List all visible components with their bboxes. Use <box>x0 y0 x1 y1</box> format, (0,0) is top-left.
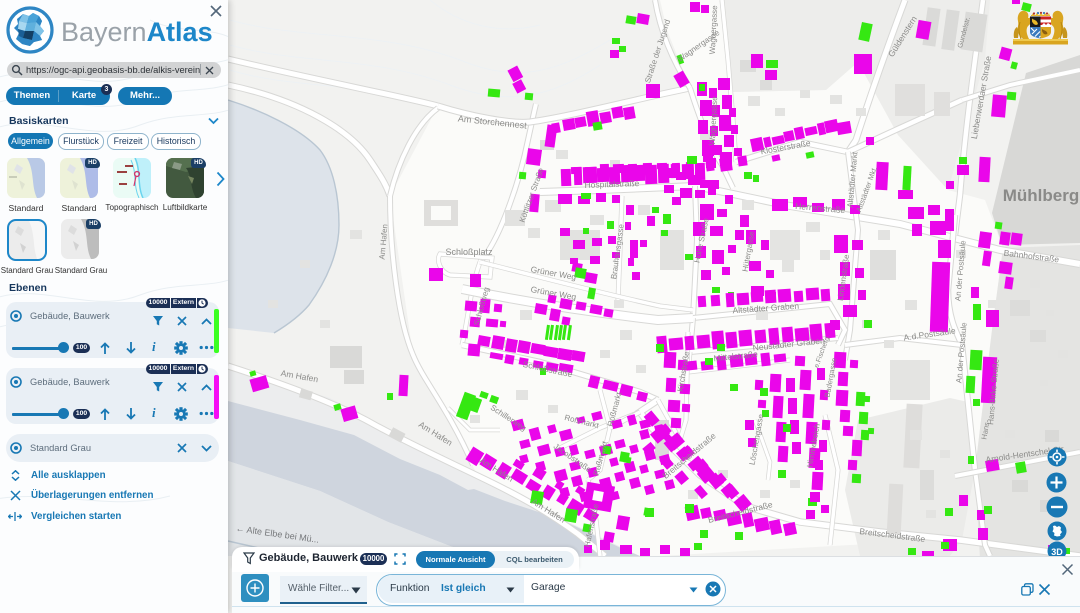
svg-text:Schloßplatz: Schloßplatz <box>445 247 493 257</box>
svg-text:Hospitalstraße: Hospitalstraße <box>584 178 639 190</box>
svg-text:Mühlberg: Mühlberg <box>1003 186 1080 205</box>
